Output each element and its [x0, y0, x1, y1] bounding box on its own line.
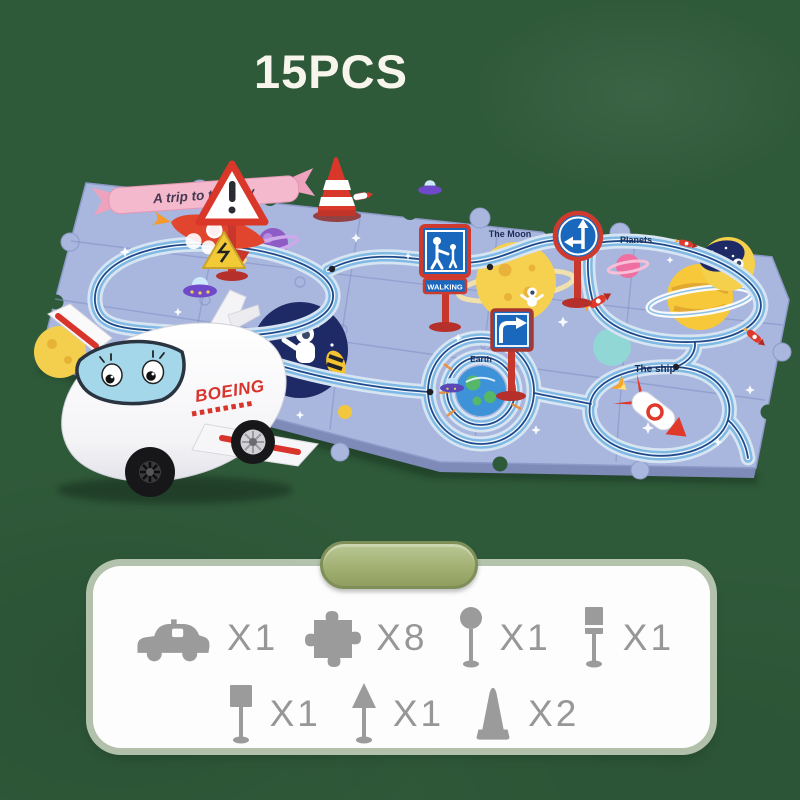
plane-front-wheel — [125, 447, 175, 497]
parts-row-2: X1 X1 — [93, 676, 710, 752]
moon-label: The Moon — [489, 229, 532, 239]
round-sign-icon — [454, 605, 488, 671]
part-tall-sign: X1 — [577, 605, 674, 671]
panel-handle-pill — [320, 541, 478, 589]
product-photo: 15PCS — [0, 0, 800, 800]
tall-sign-icon — [577, 605, 611, 671]
traffic-cone-icon — [470, 683, 516, 745]
yellow-dot — [338, 405, 352, 419]
walking-sign-label: WALKING — [427, 283, 463, 292]
toy-vehicle-icon — [129, 610, 215, 666]
plane-rear-wheel — [231, 420, 275, 464]
part-count: X2 — [528, 693, 579, 735]
plane-windshield — [77, 342, 184, 404]
part-square-sign: X1 — [224, 681, 321, 747]
part-arrow-sign: X1 — [347, 681, 444, 747]
part-count: X1 — [270, 693, 321, 735]
part-count: X1 — [227, 617, 278, 659]
parts-row-1: X1 X8 — [93, 600, 710, 676]
part-puzzle-piece: X8 — [304, 608, 427, 668]
part-traffic-cone: X2 — [470, 683, 579, 745]
parts-list-panel: X1 X8 — [93, 566, 710, 748]
arrow-sign-icon — [347, 681, 381, 747]
part-vehicle: X1 — [129, 610, 278, 666]
planets-label: Planets — [620, 235, 652, 245]
plane-shadow — [57, 476, 293, 504]
part-count: X1 — [393, 693, 444, 735]
ship-label: The ship — [634, 364, 675, 375]
part-count: X1 — [623, 617, 674, 659]
part-count: X1 — [500, 617, 551, 659]
part-round-sign: X1 — [454, 605, 551, 671]
part-count: X8 — [376, 617, 427, 659]
traffic-cone — [313, 157, 361, 222]
puzzle-piece-icon — [304, 608, 364, 668]
square-sign-icon — [224, 681, 258, 747]
earth-label: Earth — [470, 354, 492, 364]
